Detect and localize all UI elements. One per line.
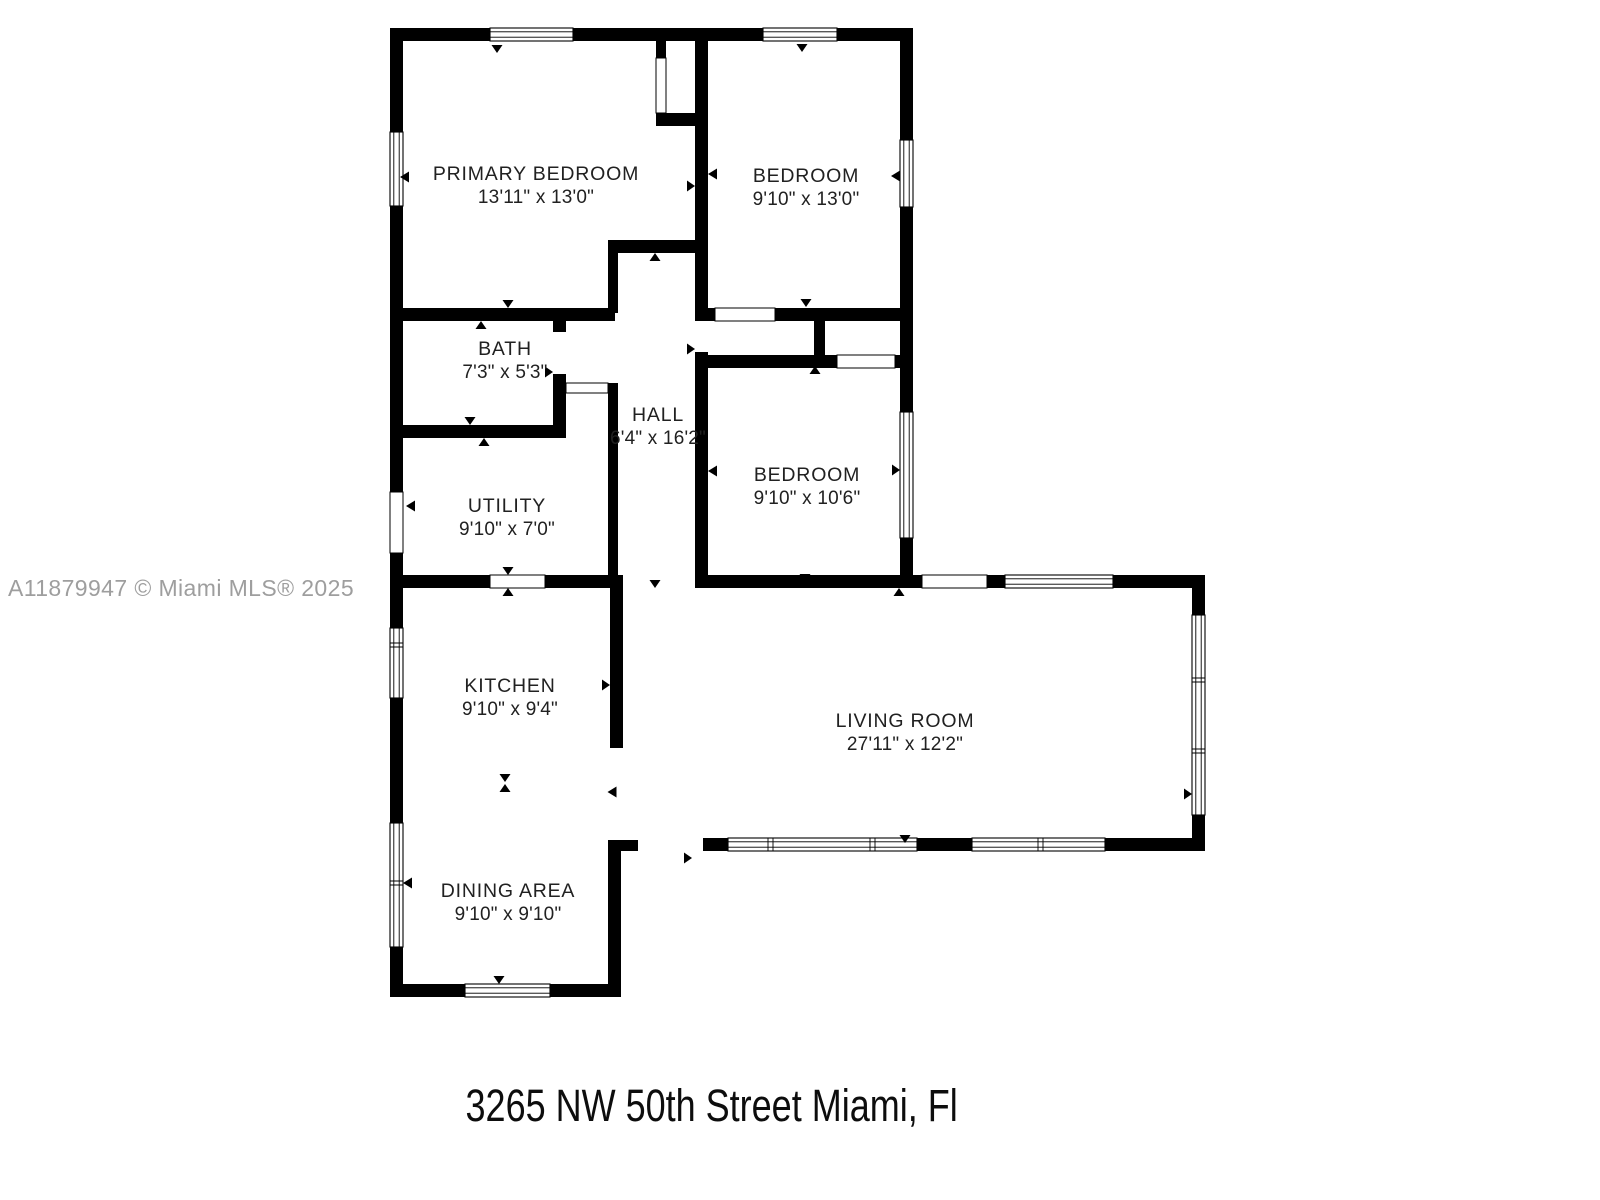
marker-arrow	[801, 299, 812, 307]
closet-opening	[837, 355, 895, 368]
pass-through-opening	[490, 575, 545, 588]
room-label-dining-area: DINING AREA 9'10" x 9'10"	[441, 880, 576, 925]
window	[465, 984, 550, 997]
marker-arrow	[602, 680, 610, 691]
room-label-bath: BATH 7'3" x 5'3"	[462, 338, 547, 383]
entry-door-opening	[922, 575, 987, 588]
window	[900, 140, 913, 207]
room-label-utility: UTILITY 9'10" x 7'0"	[459, 495, 555, 540]
room-label-bedroom-top: BEDROOM 9'10" x 13'0"	[753, 165, 860, 210]
room-name: BEDROOM	[754, 464, 860, 486]
marker-arrow	[503, 300, 514, 308]
room-dimensions: 13'11" x 13'0"	[478, 187, 594, 208]
room-dimensions: 9'10" x 7'0"	[459, 519, 555, 540]
room-name: UTILITY	[468, 495, 546, 517]
address-caption: 3265 NW 50th Street Miami, Fl	[0, 1080, 1424, 1132]
room-name: LIVING ROOM	[836, 710, 975, 732]
marker-arrow	[406, 501, 415, 512]
room-dimensions: 9'10" x 10'6"	[754, 488, 861, 509]
window	[972, 838, 1105, 851]
marker-arrow	[650, 253, 661, 261]
room-name: HALL	[632, 404, 684, 426]
marker-arrow	[503, 588, 514, 596]
marker-arrow	[494, 976, 505, 984]
room-name: PRIMARY BEDROOM	[433, 163, 639, 185]
window	[390, 132, 403, 206]
marker-arrow	[479, 438, 490, 446]
window	[900, 412, 913, 538]
window	[390, 823, 403, 947]
room-name: KITCHEN	[464, 675, 555, 697]
room-label-kitchen: KITCHEN 9'10" x 9'4"	[462, 675, 558, 720]
marker-arrow	[687, 344, 695, 355]
room-dimensions: 9'10" x 9'4"	[462, 699, 558, 720]
utility-exterior-door	[390, 492, 403, 553]
marker-arrow	[608, 787, 617, 798]
marker-arrow	[650, 580, 661, 588]
room-label-primary-bedroom: PRIMARY BEDROOM 13'11" x 13'0"	[433, 163, 639, 208]
marker-arrow	[1184, 789, 1192, 800]
window	[390, 628, 403, 698]
marker-arrow	[708, 466, 717, 477]
window	[763, 28, 837, 41]
room-dimensions: 9'10" x 9'10"	[455, 904, 562, 925]
room-name: DINING AREA	[441, 880, 576, 902]
marker-arrow	[894, 588, 905, 596]
room-label-hall: HALL 6'4" x 16'2"	[610, 404, 706, 449]
floorplan-image: A11879947 © Miami MLS® 2025	[0, 0, 1600, 1200]
marker-arrow	[708, 169, 717, 180]
marker-arrow	[403, 878, 412, 889]
marker-arrow	[892, 465, 900, 476]
room-label-living-room: LIVING ROOM 27'11" x 12'2"	[836, 710, 975, 755]
address-text: 3265 NW 50th Street Miami, Fl	[466, 1080, 958, 1132]
marker-arrow	[500, 774, 511, 782]
window	[1005, 575, 1113, 588]
room-dimensions: 9'10" x 13'0"	[753, 189, 860, 210]
room-dimensions: 7'3" x 5'3"	[462, 362, 547, 383]
marker-arrow	[687, 181, 695, 192]
marker-arrow	[476, 321, 487, 329]
closet-opening	[656, 58, 666, 113]
marker-arrow	[492, 45, 503, 53]
room-dimensions: 27'11" x 12'2"	[847, 734, 963, 755]
room-dimensions: 6'4" x 16'2"	[610, 428, 706, 449]
window	[728, 838, 917, 851]
closet-opening	[715, 308, 775, 321]
linen-closet-opening	[566, 383, 608, 393]
marker-arrow	[465, 417, 476, 425]
marker-arrow	[503, 567, 514, 575]
marker-arrow	[500, 784, 511, 792]
room-name: BATH	[478, 338, 532, 360]
marker-arrow	[891, 171, 900, 182]
floorplan-drawing: PRIMARY BEDROOM 13'11" x 13'0" BEDROOM 9…	[0, 0, 1600, 1200]
window	[490, 28, 573, 41]
room-label-bedroom-middle: BEDROOM 9'10" x 10'6"	[754, 464, 861, 509]
window	[1192, 615, 1205, 815]
marker-arrow	[684, 853, 692, 864]
room-name: BEDROOM	[753, 165, 859, 187]
marker-arrow	[797, 44, 808, 52]
